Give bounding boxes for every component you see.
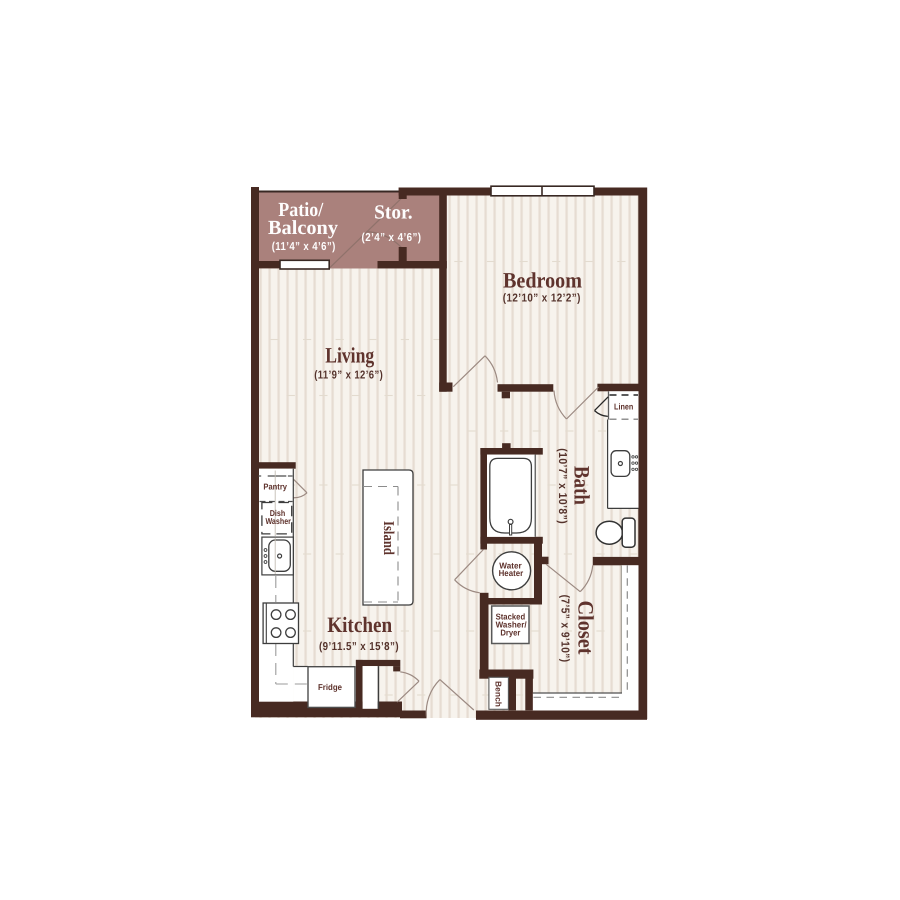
svg-text:Bath: Bath (570, 466, 595, 505)
svg-text:Dryer: Dryer (500, 627, 521, 637)
svg-text:Fridge: Fridge (318, 682, 342, 692)
svg-text:Bedroom: Bedroom (503, 267, 582, 292)
svg-text:(2’4” x 4’6”): (2’4” x 4’6”) (362, 232, 422, 244)
svg-text:Pantry: Pantry (263, 481, 287, 491)
svg-text:Closet: Closet (573, 601, 598, 656)
svg-text:(11’9” x 12’6”): (11’9” x 12’6”) (314, 370, 383, 382)
svg-text:Washer: Washer (265, 516, 291, 526)
svg-text:(11’4” x 4’6”): (11’4” x 4’6”) (272, 241, 336, 253)
svg-text:Stor.: Stor. (374, 201, 413, 223)
svg-text:Island: Island (380, 521, 396, 556)
svg-text:Bench: Bench (494, 681, 504, 707)
svg-text:(9’11.5” x 15’8”): (9’11.5” x 15’8”) (319, 641, 399, 653)
svg-text:Linen: Linen (614, 402, 633, 412)
svg-text:(12’10” x 12’2”): (12’10” x 12’2”) (503, 292, 581, 304)
svg-text:Living: Living (325, 343, 374, 368)
svg-text:Kitchen: Kitchen (327, 612, 392, 637)
svg-text:(7’5” x 9’10”): (7’5” x 9’10”) (559, 595, 571, 663)
svg-text:Heater: Heater (499, 568, 524, 578)
svg-text:(10’7” x 10’8”): (10’7” x 10’8”) (556, 448, 568, 524)
svg-text:Balcony: Balcony (268, 217, 338, 239)
